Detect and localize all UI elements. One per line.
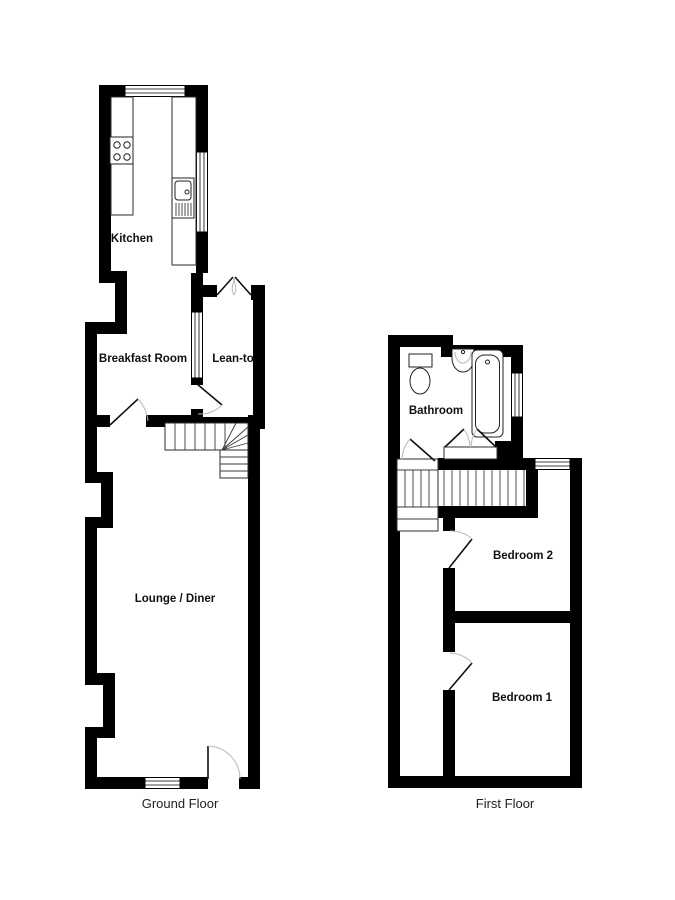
wall-segment	[438, 458, 535, 470]
wall-segment	[443, 623, 455, 652]
bathroom-fixtures	[409, 349, 503, 437]
wall-segment	[85, 528, 97, 673]
chimney-recess	[103, 685, 115, 727]
window	[197, 152, 208, 232]
ground-floor-caption: Ground Floor	[142, 796, 219, 811]
room-label-bedroom2: Bedroom 2	[493, 550, 553, 562]
bedroom2-door	[449, 531, 472, 568]
window	[192, 312, 203, 378]
chimney-recess	[85, 673, 115, 685]
front-door	[208, 746, 240, 779]
ground-floor-stairs	[165, 423, 248, 478]
wall-segment	[248, 415, 260, 789]
first-floor-caption: First Floor	[476, 796, 535, 811]
bedroom1-door	[449, 653, 472, 690]
toilet-icon	[409, 354, 432, 394]
wall-segment	[511, 345, 523, 373]
wall-segment	[191, 378, 203, 385]
room-label-breakfast: Breakfast Room	[99, 353, 187, 365]
first-floor-plan: Bathroom Bedroom 2 Bedroom 1 First Floor	[388, 335, 582, 811]
wall-segment	[253, 285, 265, 429]
chimney-recess	[85, 517, 113, 528]
french-doors	[217, 277, 251, 295]
window	[125, 86, 185, 97]
bathtub-icon	[472, 350, 503, 437]
ground-floor-plan: Kitchen Breakfast Room Lean-to Lounge / …	[85, 85, 265, 811]
window	[535, 459, 570, 470]
chimney-recess	[85, 472, 113, 483]
wall-segment	[85, 322, 97, 427]
room-label-bedroom1: Bedroom 1	[492, 692, 553, 704]
wall-segment	[85, 415, 97, 472]
stairwell-treads	[444, 470, 524, 506]
wall-segment	[443, 611, 582, 623]
wall-segment	[443, 518, 455, 531]
room-label-lounge: Lounge / Diner	[135, 593, 216, 605]
room-label-bathroom: Bathroom	[409, 405, 463, 417]
wall-segment	[191, 273, 203, 312]
window	[145, 778, 180, 789]
wall-segment	[388, 776, 582, 788]
door-post	[203, 285, 217, 297]
window	[512, 373, 523, 417]
wall-segment	[99, 85, 111, 283]
wall-segment	[239, 777, 260, 789]
wall-segment	[495, 441, 523, 459]
stove-icon	[110, 137, 133, 164]
bathroom-door	[402, 439, 435, 461]
sink-icon	[172, 178, 194, 218]
wall-segment	[196, 85, 208, 152]
wall-segment	[438, 506, 538, 518]
door	[110, 399, 148, 425]
wall-segment	[196, 232, 208, 273]
floorplan-canvas: Kitchen Breakfast Room Lean-to Lounge / …	[0, 0, 675, 900]
floorplan-svg: Kitchen Breakfast Room Lean-to Lounge / …	[0, 0, 675, 900]
room-label-kitchen: Kitchen	[111, 233, 153, 245]
chimney-recess	[101, 483, 113, 517]
wall-segment	[115, 271, 127, 324]
basin-icon	[452, 349, 474, 372]
wall-segment	[388, 335, 400, 788]
room-label-leanto: Lean-to	[212, 353, 254, 365]
chimney-recess	[85, 727, 115, 738]
wall-segment	[443, 690, 455, 788]
